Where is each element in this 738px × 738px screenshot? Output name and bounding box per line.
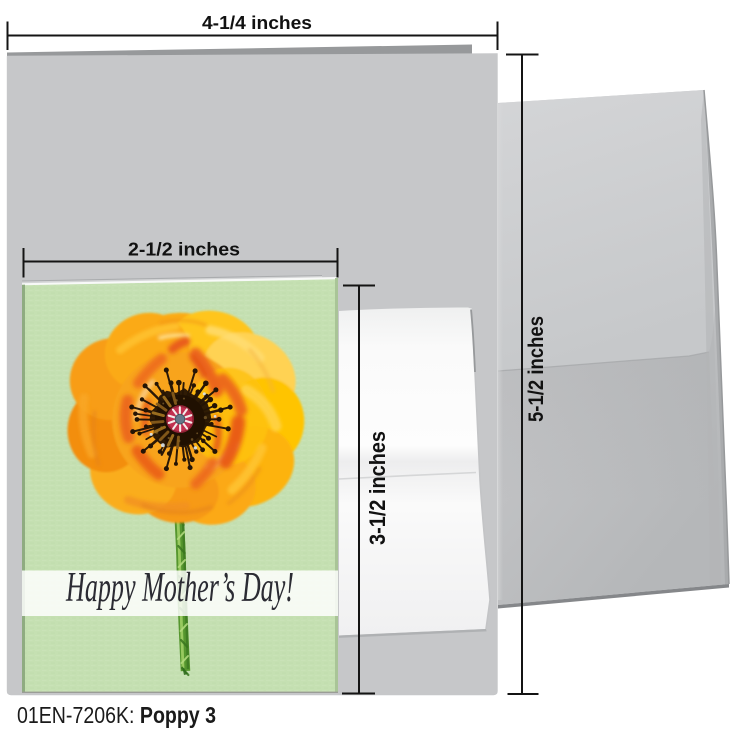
svg-text:Happy Mother’s Day!: Happy Mother’s Day!	[65, 565, 294, 611]
svg-text:4-1/4 inches: 4-1/4 inches	[202, 13, 312, 33]
svg-text:2-1/2 inches: 2-1/2 inches	[128, 240, 240, 260]
svg-text:3-1/2 inches: 3-1/2 inches	[365, 431, 390, 545]
svg-text:5-1/2 inches: 5-1/2 inches	[524, 316, 548, 422]
svg-text:01EN-7206K: Poppy 3: 01EN-7206K: Poppy 3	[17, 702, 216, 728]
